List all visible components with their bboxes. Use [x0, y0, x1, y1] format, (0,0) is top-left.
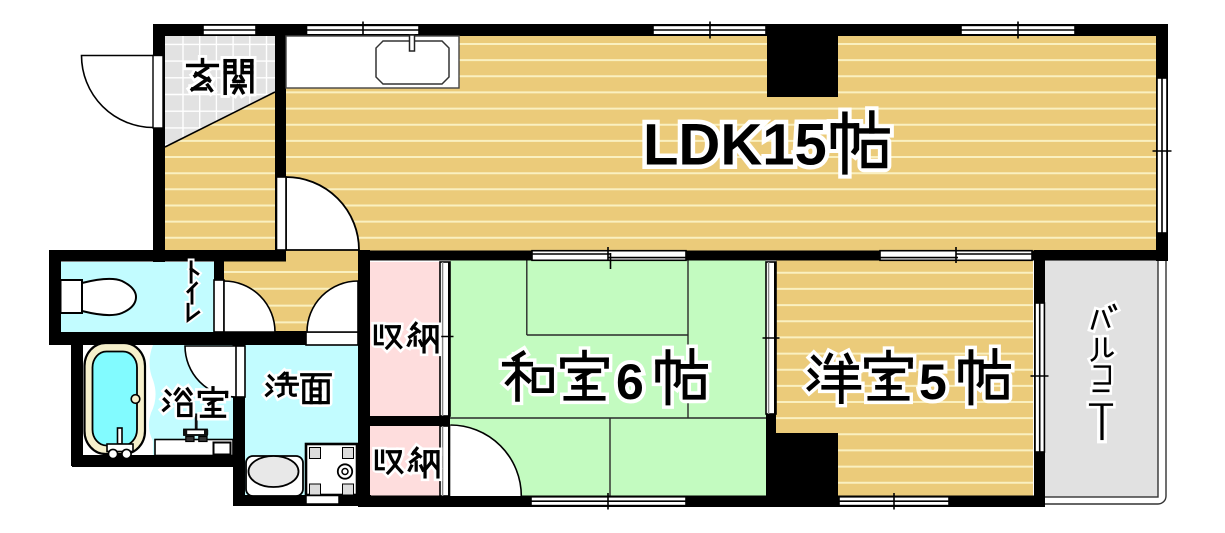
svg-text:5: 5 [919, 354, 947, 410]
svg-text:LDK15: LDK15 [643, 113, 827, 178]
svg-text:6: 6 [616, 354, 644, 410]
